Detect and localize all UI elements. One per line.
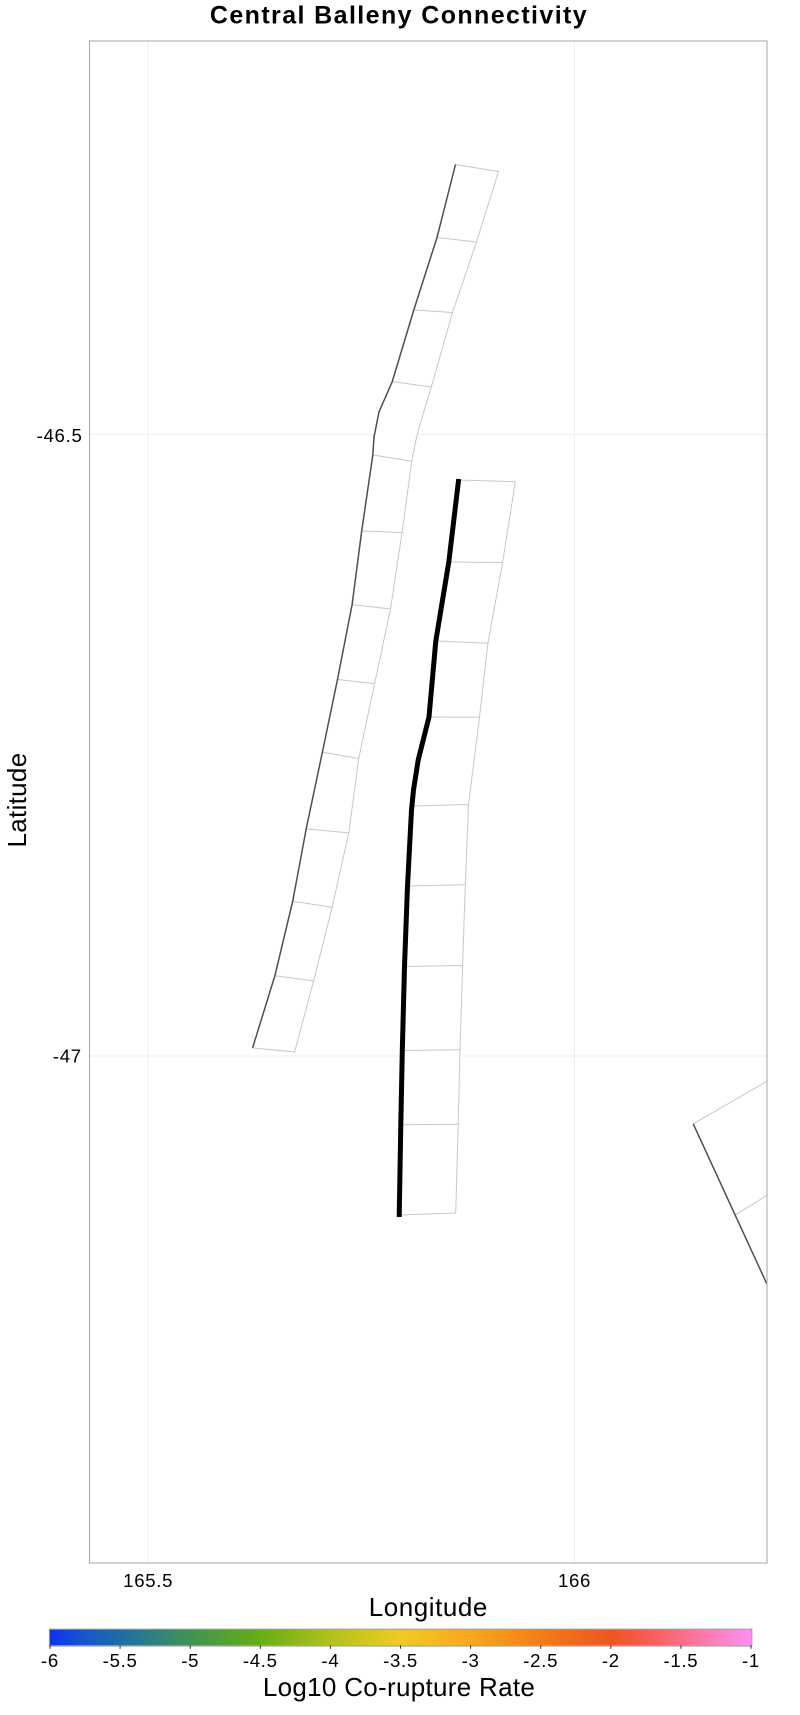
svg-text:-4: -4 [321, 1650, 339, 1671]
svg-text:166: 166 [558, 1570, 591, 1591]
svg-text:-2: -2 [602, 1650, 620, 1671]
svg-text:165.5: 165.5 [123, 1570, 173, 1591]
svg-text:-5.5: -5.5 [103, 1650, 138, 1671]
svg-text:-1.5: -1.5 [663, 1650, 698, 1671]
svg-text:Longitude: Longitude [369, 1592, 488, 1622]
svg-text:Central Balleny Connectivity: Central Balleny Connectivity [210, 1, 588, 29]
svg-text:Latitude: Latitude [2, 753, 32, 848]
svg-text:-4.5: -4.5 [243, 1650, 278, 1671]
svg-text:Log10 Co-rupture Rate: Log10 Co-rupture Rate [263, 1672, 535, 1702]
svg-text:-3.5: -3.5 [383, 1650, 418, 1671]
svg-text:-1: -1 [742, 1650, 760, 1671]
svg-text:-2.5: -2.5 [523, 1650, 558, 1671]
svg-text:-6: -6 [41, 1650, 59, 1671]
svg-text:-3: -3 [462, 1650, 480, 1671]
svg-text:-5: -5 [181, 1650, 199, 1671]
svg-text:-47: -47 [53, 1046, 82, 1067]
svg-text:-46.5: -46.5 [37, 425, 83, 446]
